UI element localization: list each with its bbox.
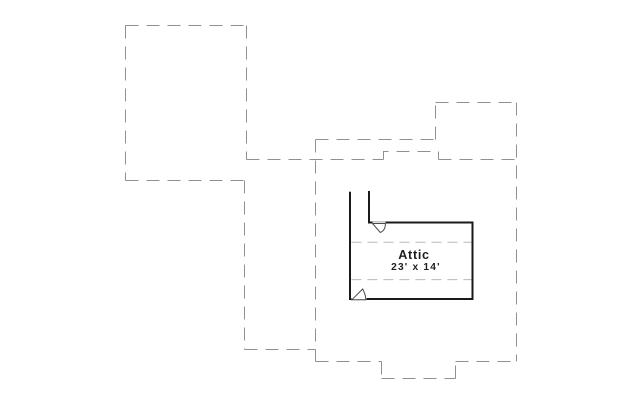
- svg-text:23' x 14': 23' x 14': [391, 262, 441, 273]
- svg-text:Attic: Attic: [398, 248, 430, 262]
